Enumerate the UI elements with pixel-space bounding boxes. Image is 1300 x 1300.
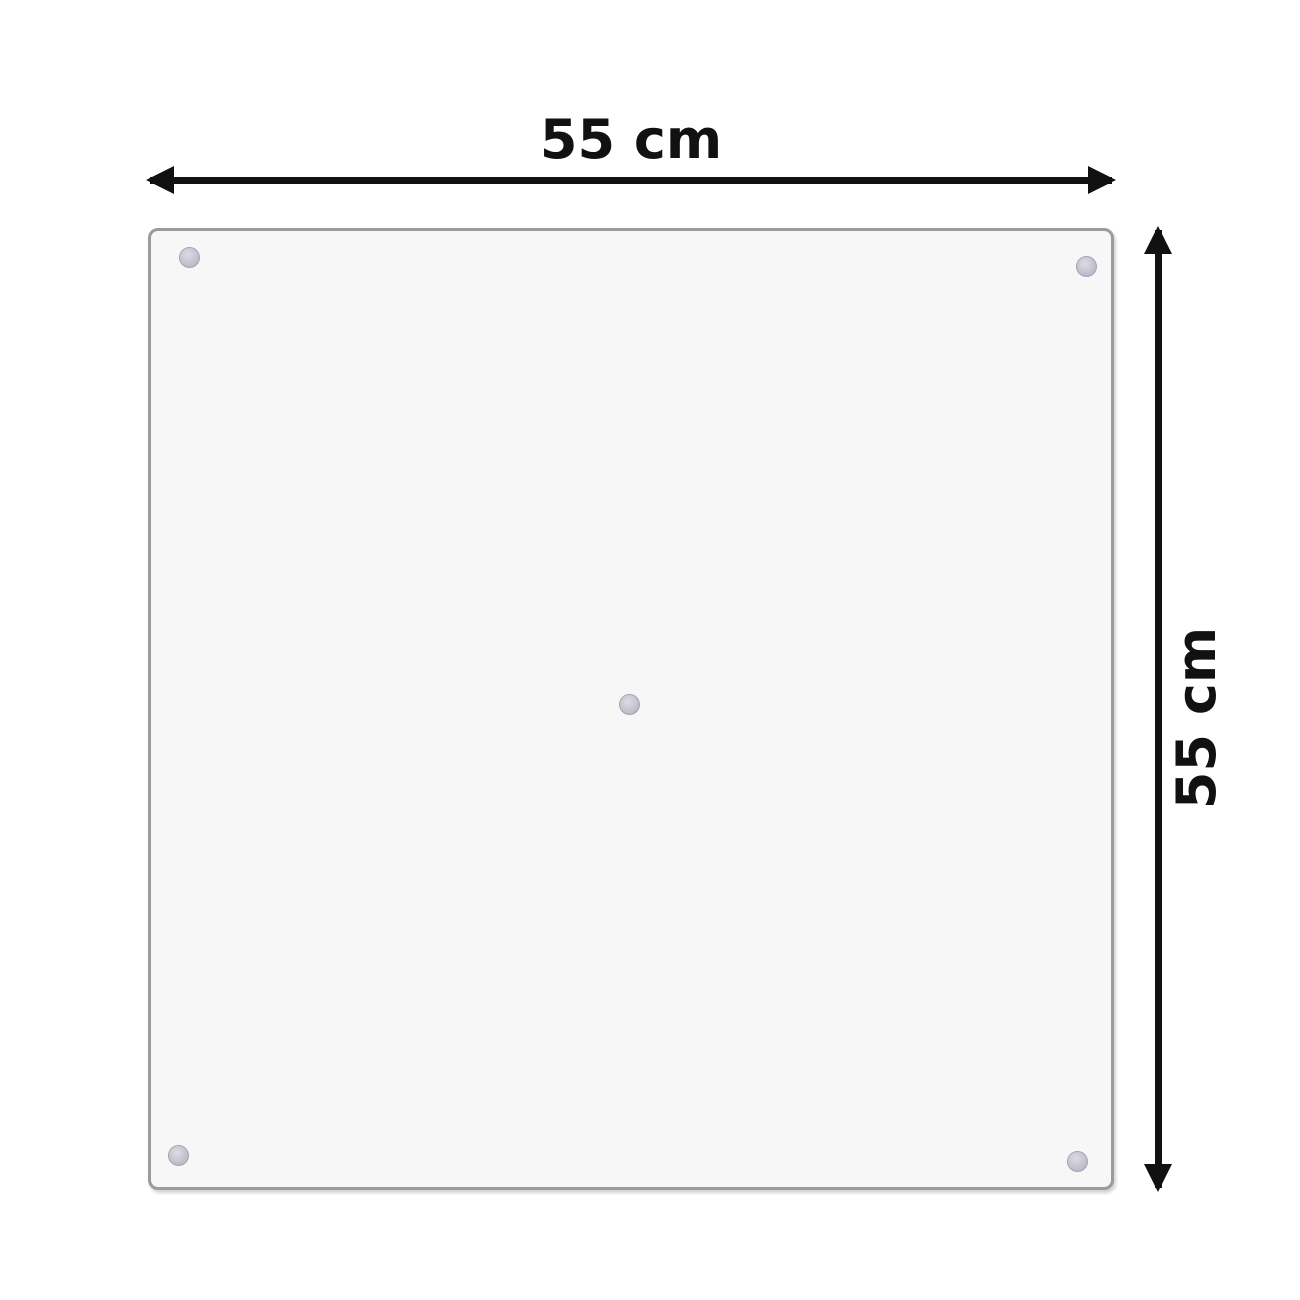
suction-cup-dot-bottom-right <box>1067 1151 1088 1172</box>
suction-cup-dot-bottom-left <box>168 1145 189 1166</box>
arrow-up-icon <box>1144 226 1172 254</box>
suction-cup-dot-top-left <box>179 247 200 268</box>
suction-cup-dot-top-right <box>1076 256 1097 277</box>
width-dimension-label: 55 cm <box>148 108 1114 171</box>
arrow-down-icon <box>1144 1164 1172 1192</box>
height-dimension-arrow-line <box>1155 230 1162 1188</box>
height-dimension-arrow-bar <box>1155 230 1162 1188</box>
dimension-diagram: 55 cm 55 cm <box>0 0 1300 1300</box>
width-dimension-arrow-line <box>150 177 1112 184</box>
height-dimension-label: 55 cm <box>1162 618 1232 818</box>
suction-cup-dot-center <box>619 694 640 715</box>
